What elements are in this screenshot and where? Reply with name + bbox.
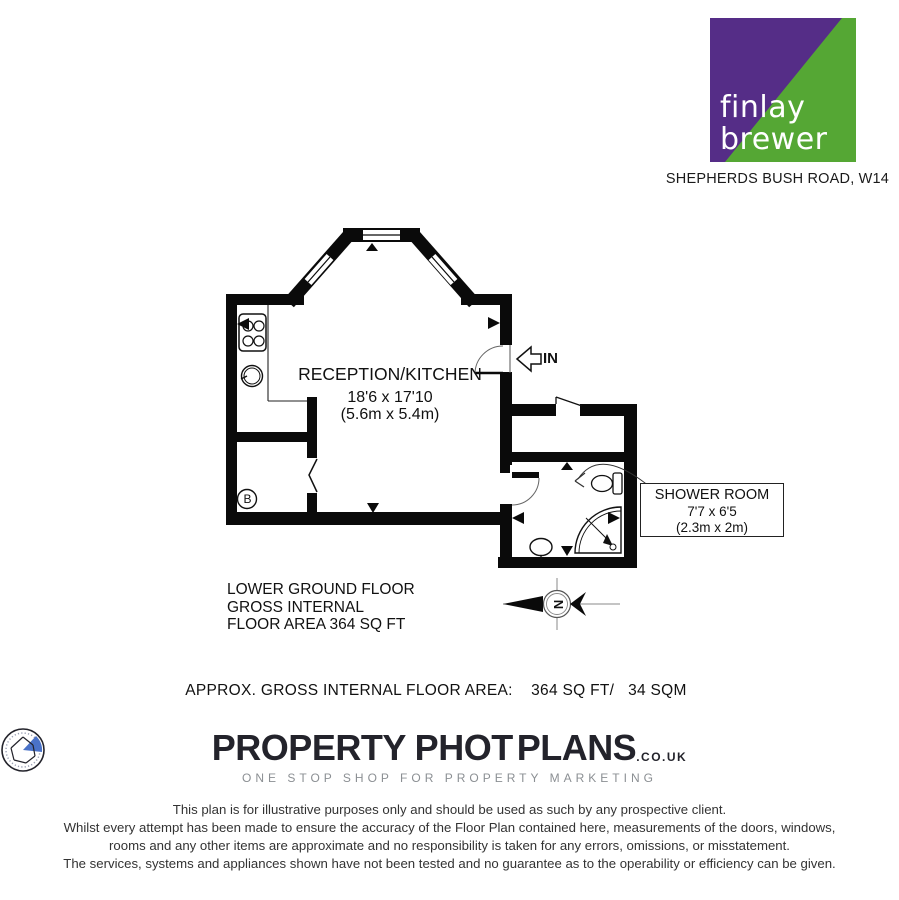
disclaimer-line2: Whilst every attempt has been made to en… <box>0 819 899 837</box>
bifold-door <box>309 459 317 492</box>
shower-dims-imperial: 7'7 x 6'5 <box>641 504 783 520</box>
branding-logo-tld: .CO.UK <box>636 750 687 769</box>
compass-north-label: N <box>549 596 566 613</box>
entrance-arrow-icon <box>517 347 541 371</box>
shower-dims-metric: (2.3m x 2m) <box>641 520 783 536</box>
branding-logo: PROPERTY PHOT PLANS .CO.UK <box>0 727 899 769</box>
disclaimer-line4: The services, systems and appliances sho… <box>0 855 899 873</box>
property-address: SHEPHERDS BUSH ROAD, W14 <box>655 171 899 187</box>
agency-logo-text: finlay brewer <box>720 92 828 156</box>
floorplan-page: { "agency": { "name_line1": "finlay", "n… <box>0 0 899 900</box>
branding-tagline: ONE STOP SHOP FOR PROPERTY MARKETING <box>0 771 899 785</box>
disclaimer-text: This plan is for illustrative purposes o… <box>0 801 899 873</box>
floor-title-line1: LOWER GROUND FLOOR <box>227 581 415 599</box>
shower-door-arc <box>512 478 539 505</box>
shower-room-label: SHOWER ROOM 7'7 x 6'5 (2.3m x 2m) <box>640 483 784 537</box>
agency-logo: finlay brewer <box>710 18 856 162</box>
floor-title-line3: FLOOR AREA 364 SQ FT <box>227 616 415 634</box>
reception-dims-metric: (5.6m x 5.4m) <box>285 406 495 423</box>
gross-area-line: APPROX. GROSS INTERNAL FLOOR AREA: 364 S… <box>0 682 872 700</box>
reception-room-name: RECEPTION/KITCHEN <box>285 364 495 385</box>
entrance-label: IN <box>543 350 558 367</box>
reception-room-label: RECEPTION/KITCHEN 18'6 x 17'10 (5.6m x 5… <box>285 364 495 423</box>
hallway-door <box>556 397 582 406</box>
basin-icon <box>530 539 552 561</box>
agency-name-line1: finlay <box>720 92 828 124</box>
toilet-icon <box>592 473 623 494</box>
hob-icon <box>239 314 266 351</box>
shower-tray-icon <box>575 507 621 553</box>
reception-dims-imperial: 18'6 x 17'10 <box>285 389 495 406</box>
boiler-label: B <box>240 492 255 506</box>
branding-logo-left: PROPERTY PHOT <box>212 727 513 769</box>
disclaimer-line3: rooms and any other items are approximat… <box>0 837 899 855</box>
floor-title: LOWER GROUND FLOOR GROSS INTERNAL FLOOR … <box>227 581 415 634</box>
agency-name-line2: brewer <box>720 124 828 156</box>
branding-logo-right: PLANS <box>517 727 637 769</box>
sink-icon <box>241 366 263 387</box>
floor-title-line2: GROSS INTERNAL <box>227 599 415 617</box>
shower-room-name: SHOWER ROOM <box>641 486 783 504</box>
disclaimer-line1: This plan is for illustrative purposes o… <box>0 801 899 819</box>
